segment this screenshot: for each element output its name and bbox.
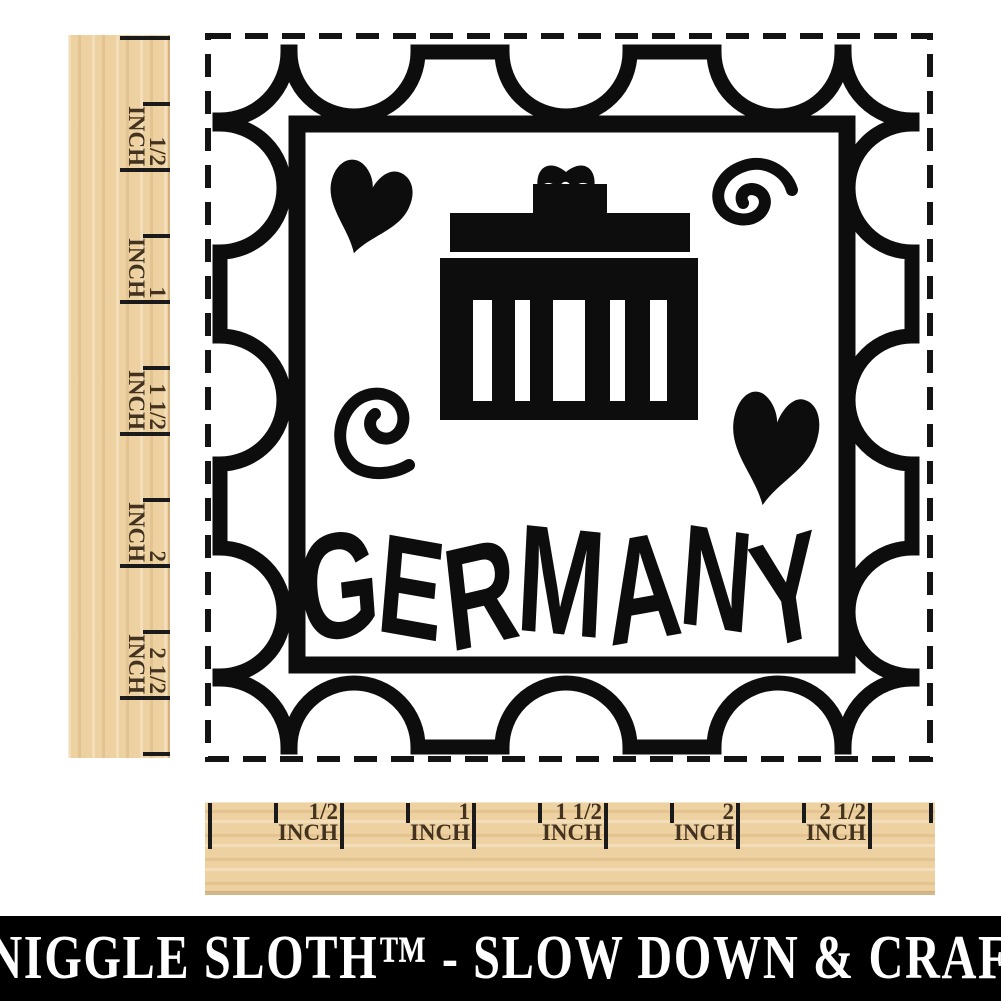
ruler-bottom-tick: [604, 803, 608, 849]
gate-pedestal: [533, 184, 607, 214]
ruler-left-tick: [120, 168, 170, 172]
heart-icon-top-left: [314, 155, 418, 265]
ruler-left-tick: [120, 564, 170, 568]
ruler-left-tick: [120, 696, 170, 700]
heart-icon-right: [720, 388, 824, 512]
brand-banner-text: SNIGGLE SLOTH™ - SLOW DOWN & CRAFT: [0, 923, 1001, 994]
germany-letter: R: [437, 514, 525, 675]
ruler-left-label: 2 1/2INCH: [126, 604, 168, 694]
ruler-bottom-tick: [736, 803, 740, 849]
ruler-bottom-label: 1 1/2INCH: [502, 801, 602, 843]
ruler-left-label: 2INCH: [126, 472, 168, 562]
ruler-bottom-tick: [340, 803, 344, 849]
ruler-bottom-tick: [208, 803, 212, 849]
ruler-bottom-label: 2 1/2INCH: [766, 801, 866, 843]
germany-title: GERMANY: [298, 503, 822, 671]
gate-entablature: [450, 213, 690, 252]
germany-letter: M: [514, 501, 609, 663]
ruler-bottom-tick: [472, 803, 476, 849]
brandenburg-gate-icon: [440, 166, 698, 420]
brand-banner: SNIGGLE SLOTH™ - SLOW DOWN & CRAFT: [0, 916, 1001, 1001]
swirl-icon-left: [340, 394, 409, 473]
ruler-left-tick: [143, 752, 170, 756]
ruler-bottom-label: 2INCH: [634, 801, 734, 843]
ruler-left-tick: [120, 36, 170, 40]
ruler-left-label: 1 1/2INCH: [126, 340, 168, 430]
ruler-bottom-tick: [868, 803, 872, 849]
ruler-bottom-label: 1INCH: [370, 801, 470, 843]
ruler-left-tick: [120, 300, 170, 304]
product-image: GERMANY SNIGGLE SLOTH™ - SLOW DOWN & CRA…: [0, 0, 1001, 1001]
germany-letter: Y: [743, 506, 832, 674]
ruler-left-label: 1/2INCH: [126, 76, 168, 166]
ruler-left-label: 1INCH: [126, 208, 168, 298]
ruler-bottom-tick: [929, 803, 933, 823]
swirl-icon-top-right: [718, 164, 792, 220]
germany-letter: G: [293, 504, 384, 666]
ruler-left-tick: [120, 432, 170, 436]
germany-letter: A: [599, 506, 686, 669]
ruler-bottom-label: 1/2INCH: [238, 801, 338, 843]
